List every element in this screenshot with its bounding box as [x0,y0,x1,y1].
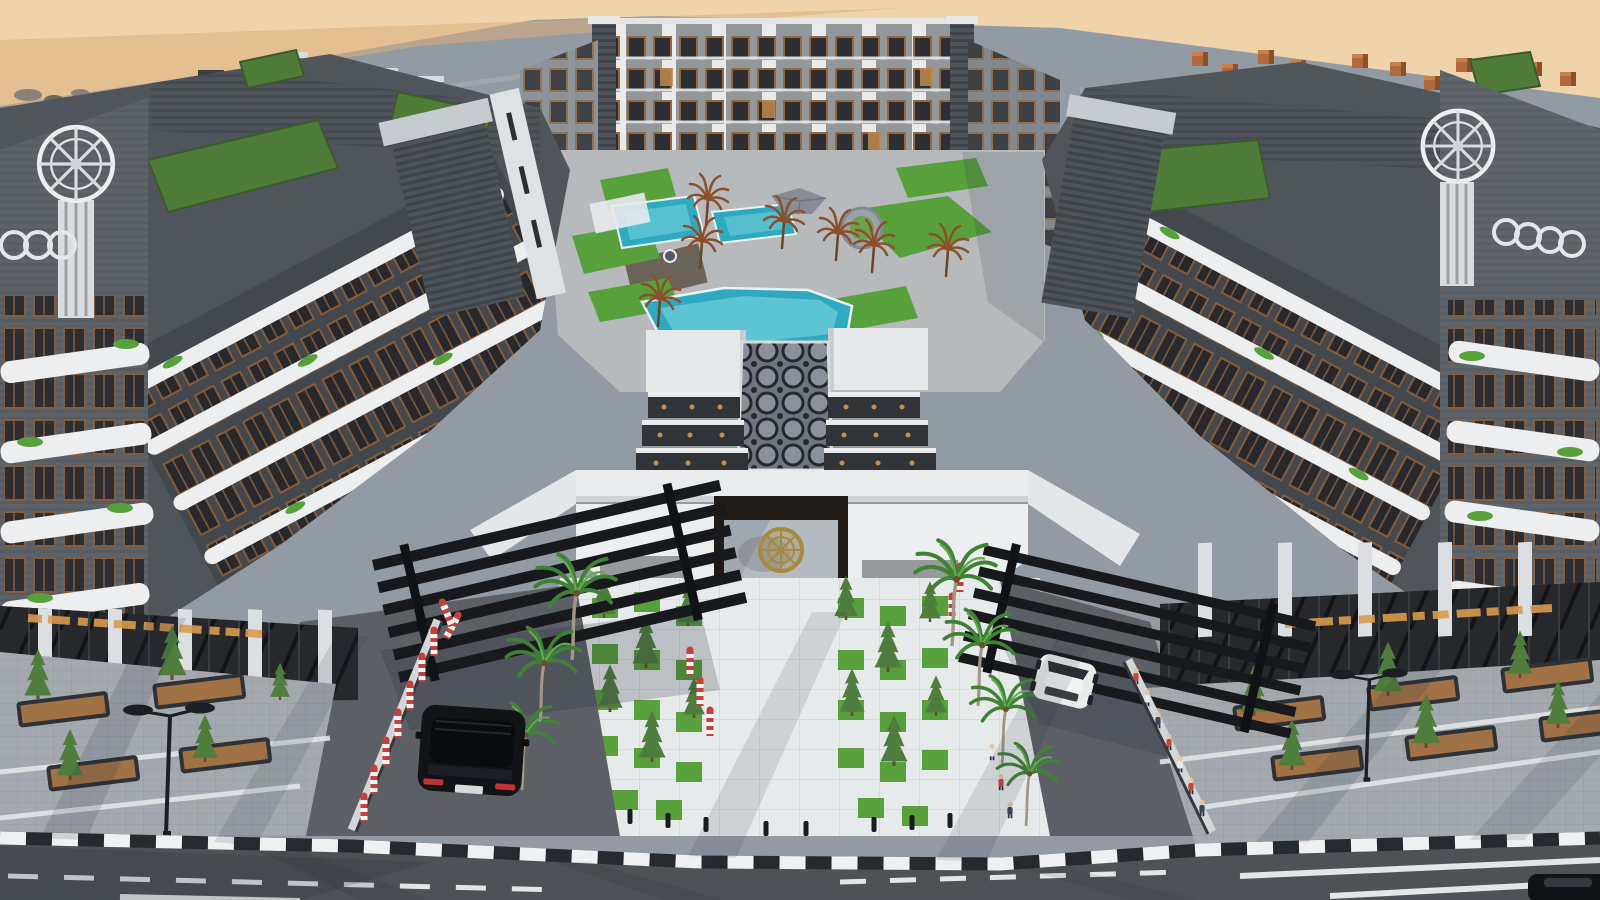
hexagonal-skylight-walkway [738,342,832,470]
gate-header [714,496,848,522]
helm-wheel-emblem-left [39,127,113,201]
helm-wheel-emblem-right [1423,111,1493,181]
stepped-skylights-right [824,392,936,474]
hanging-chair [664,250,676,262]
skylight-slab-right [828,328,928,390]
skylight-slab-left [646,330,746,392]
stepped-skylights-left [636,392,748,474]
parked-car-partial [1528,874,1600,900]
gate-helm-emblem [760,529,802,571]
architectural-rendering [0,0,1600,900]
black-suv [412,704,532,798]
left-corner-tower [0,98,155,665]
